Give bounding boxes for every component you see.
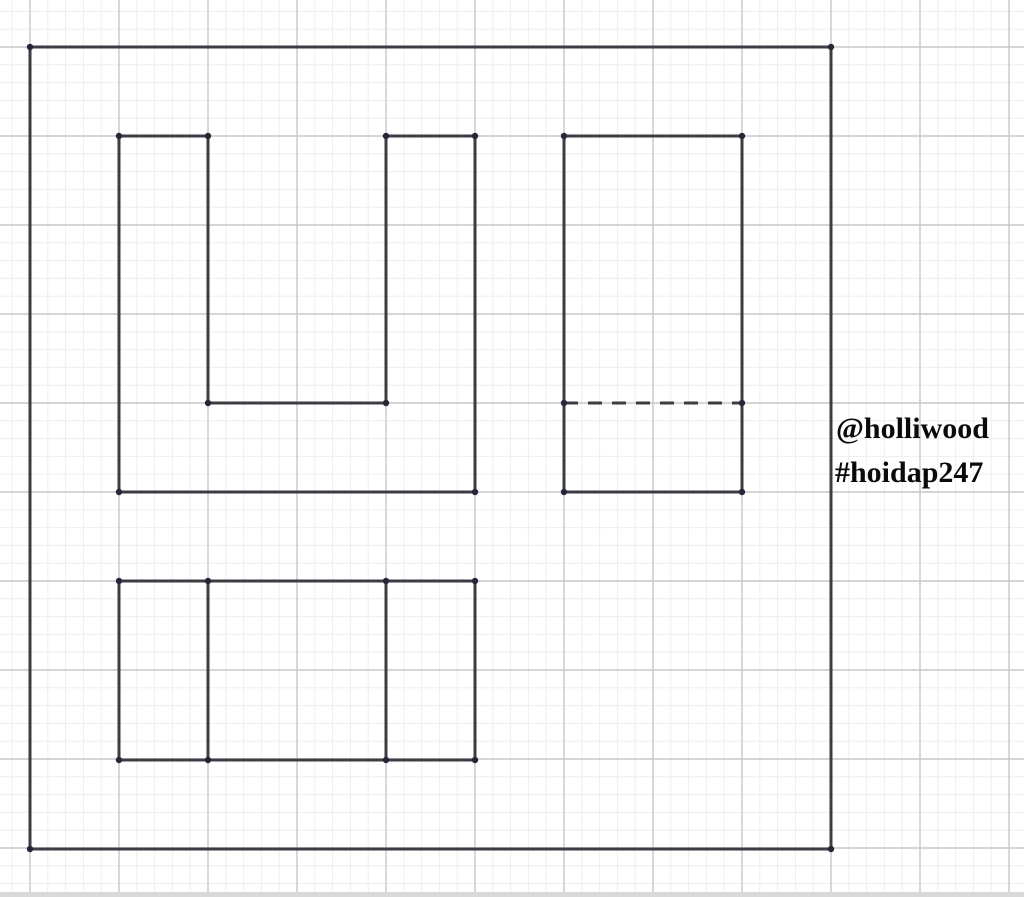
vertex-dot[interactable] bbox=[116, 133, 122, 139]
watermark-hashtag: #hoidap247 bbox=[835, 458, 983, 488]
vertex-dot[interactable] bbox=[205, 400, 211, 406]
vertex-dot[interactable] bbox=[27, 846, 33, 852]
vertex-dot[interactable] bbox=[205, 757, 211, 763]
drawing-canvas[interactable] bbox=[0, 0, 1024, 897]
vertex-dot[interactable] bbox=[739, 400, 745, 406]
vertex-dot[interactable] bbox=[472, 133, 478, 139]
vertex-dot[interactable] bbox=[27, 44, 33, 50]
outer-frame[interactable] bbox=[30, 47, 831, 849]
vertex-dot[interactable] bbox=[205, 578, 211, 584]
vertex-dot[interactable] bbox=[383, 400, 389, 406]
vertex-dot[interactable] bbox=[205, 133, 211, 139]
vertex-dot[interactable] bbox=[472, 489, 478, 495]
vertex-dot[interactable] bbox=[739, 133, 745, 139]
drawing-stage: @holliwood #hoidap247 bbox=[0, 0, 1024, 897]
watermark-handle: @holliwood bbox=[836, 414, 989, 444]
vertex-dot[interactable] bbox=[828, 44, 834, 50]
canvas-bottom-edge bbox=[0, 892, 1024, 897]
vertex-dot[interactable] bbox=[383, 133, 389, 139]
vertex-dot[interactable] bbox=[561, 133, 567, 139]
vertex-dot[interactable] bbox=[472, 757, 478, 763]
vertex-dot[interactable] bbox=[828, 846, 834, 852]
vertex-dot[interactable] bbox=[472, 578, 478, 584]
vertex-dot[interactable] bbox=[116, 489, 122, 495]
vertex-dot[interactable] bbox=[383, 578, 389, 584]
vertex-dot[interactable] bbox=[561, 489, 567, 495]
vertex-dot[interactable] bbox=[116, 757, 122, 763]
vertex-dot[interactable] bbox=[561, 400, 567, 406]
vertex-dot[interactable] bbox=[116, 578, 122, 584]
vertex-dot[interactable] bbox=[383, 757, 389, 763]
vertex-dot[interactable] bbox=[739, 489, 745, 495]
